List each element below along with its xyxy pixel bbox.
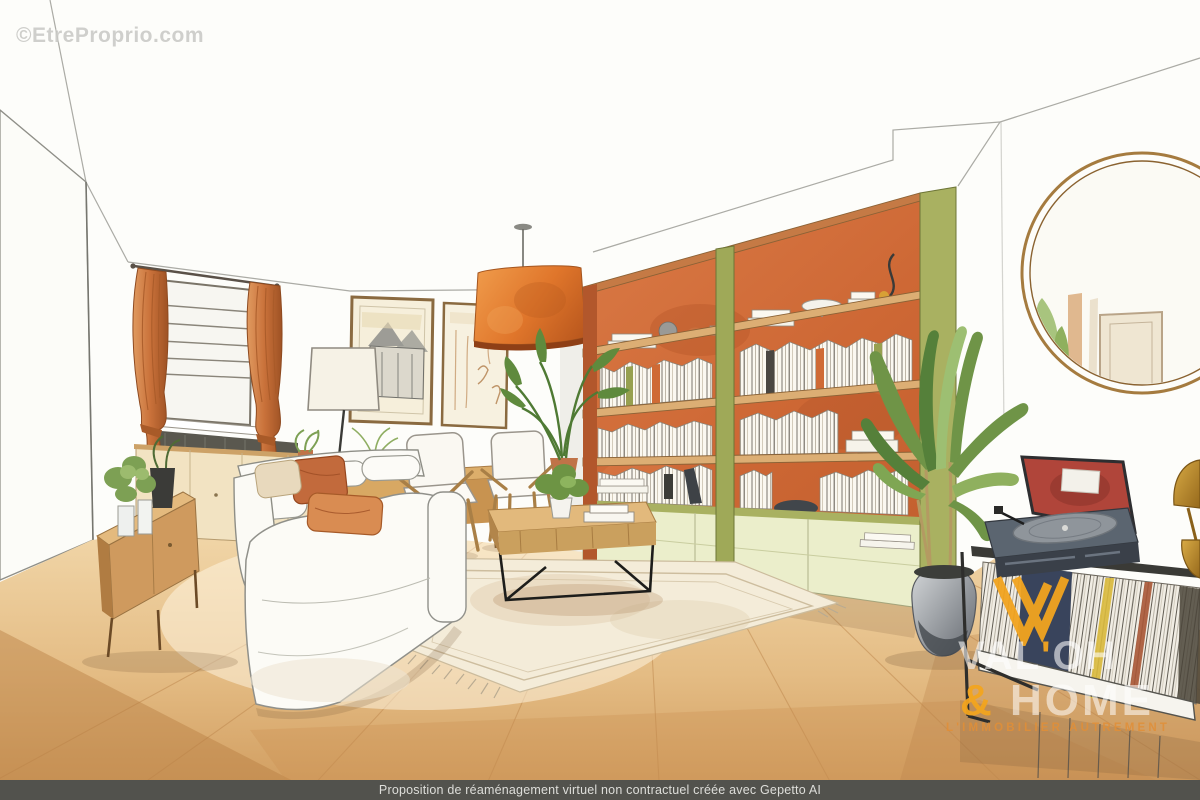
staged-room-image: ©EtreProprio.com VAL'OH & HOME L'IMMOBIL… xyxy=(0,0,1200,800)
footer-disclaimer-bar: Proposition de réaménagement virtuel non… xyxy=(0,780,1200,800)
footer-disclaimer-text: Proposition de réaménagement virtuel non… xyxy=(379,783,821,797)
room-illustration xyxy=(0,0,1200,800)
site-watermark: ©EtreProprio.com xyxy=(16,24,204,48)
window xyxy=(155,280,258,435)
